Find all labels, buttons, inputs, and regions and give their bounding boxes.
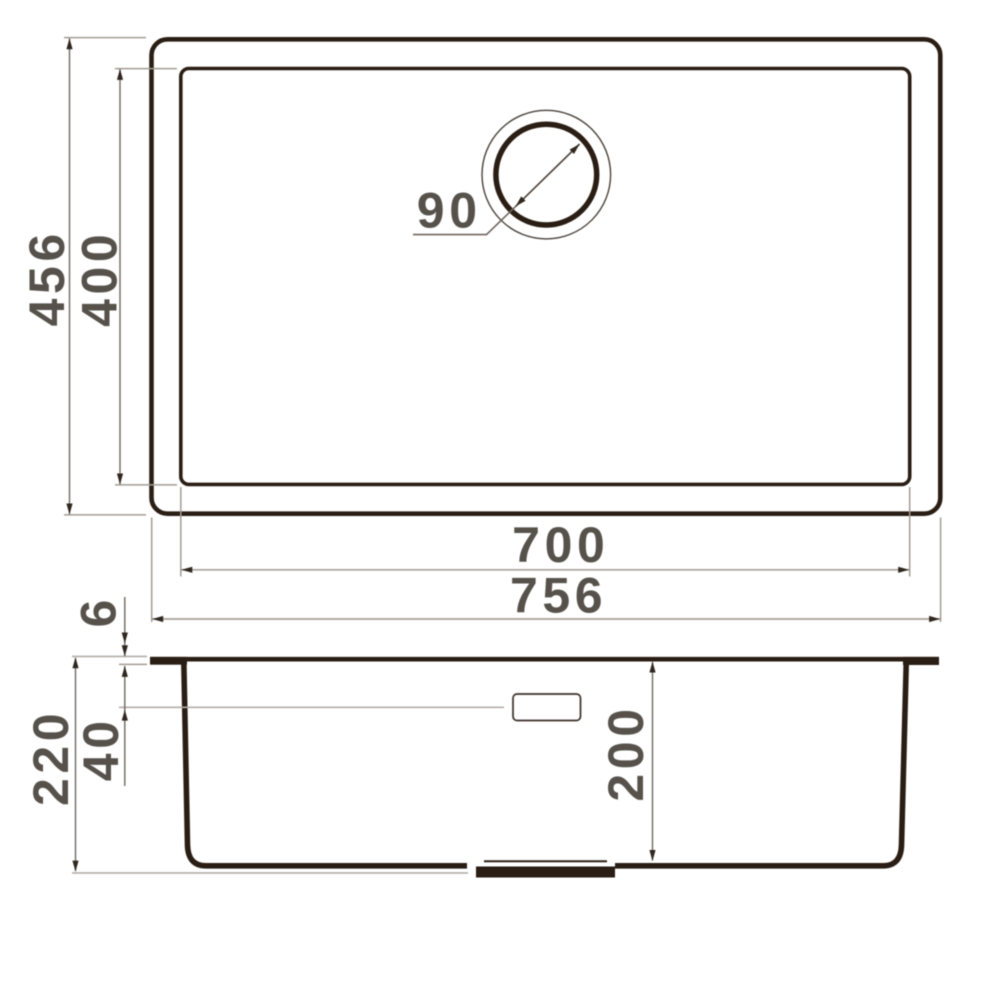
svg-text:456: 456 [19,229,75,326]
svg-text:200: 200 [598,704,654,801]
svg-text:400: 400 [72,230,128,327]
svg-text:90: 90 [417,183,482,239]
svg-text:700: 700 [512,517,609,573]
svg-text:756: 756 [510,568,607,624]
svg-text:220: 220 [23,709,79,806]
svg-text:6: 6 [70,595,126,627]
svg-text:40: 40 [73,716,129,781]
